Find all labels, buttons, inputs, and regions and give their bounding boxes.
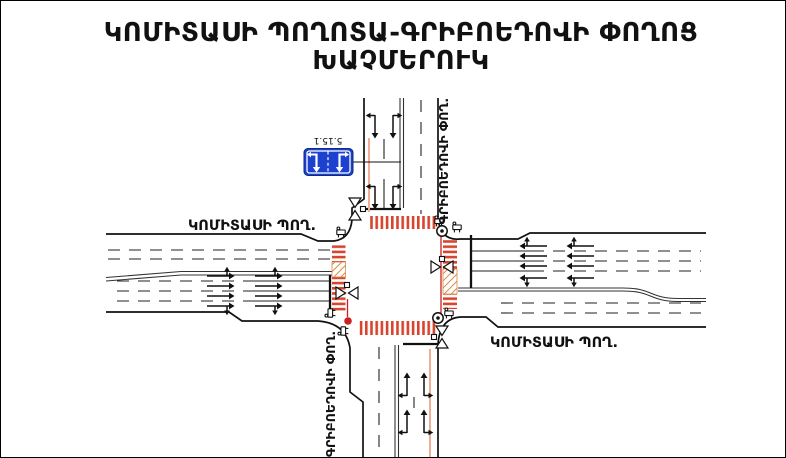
intersection-diagram: 5.15.1 ԿՈՄԻՏԱՍԻ ՊՈՂ. ԿՈՄԻՏԱՍԻ ՊՈՂ. ԳՐԻԲՈ… — [1, 1, 786, 458]
intersection-scheme-image: 5.15.1 ԿՈՄԻՏԱՍԻ ՊՈՂ. ԿՈՄԻՏԱՍԻ ՊՈՂ. ԳՐԻԲՈ… — [0, 0, 786, 458]
pedestrian-signal-icon — [337, 227, 345, 237]
page-title: ԿՈՄԻՏԱՍԻ ՊՈՂՈՏԱ-ԳՐԻԲՈԵԴՈՎԻ ՓՈՂՈՑ ԽԱՉՄԵՐՈ… — [104, 18, 699, 76]
title-line-1: ԿՈՄԻՏԱՍԻ ՊՈՂՈՏԱ-ԳՐԻԲՈԵԴՈՎԻ ՓՈՂՈՑ — [104, 18, 699, 48]
crosswalk-west — [332, 244, 346, 311]
pedestrian-signal-icon — [445, 308, 453, 318]
street-label-komitas-west: ԿՈՄԻՏԱՍԻ ՊՈՂ. — [188, 218, 316, 234]
street-label-griboyedov-south: ԳՐԻԲՈԵԴՈՎԻ ՓՈՂ. — [323, 331, 338, 457]
pedestrian-signal-icon — [453, 222, 461, 232]
signal-pole-icon-ne — [437, 226, 447, 236]
crosswalk-east-island-hatch — [443, 269, 457, 294]
crosswalk-south — [359, 321, 436, 335]
street-label-komitas-east: ԿՈՄԻՏԱՍԻ ՊՈՂ. — [490, 335, 618, 351]
title-line-2: ԽԱՉՄԵՐՈՒԿ — [312, 46, 489, 76]
lane-direction-sign: 5.15.1 — [304, 135, 401, 176]
road-edges — [106, 98, 706, 458]
lane-markings — [106, 98, 706, 458]
sign-code-label: 5.15.1 — [314, 135, 343, 145]
crosswalk-north — [368, 216, 438, 229]
street-label-griboyedov-north: ԳՐԻԲՈԵԴՈՎԻ ՓՈՂ. — [436, 98, 451, 224]
pedestrian-signal-icon — [325, 309, 335, 317]
crosswalk-west-island-hatch — [332, 262, 346, 277]
signal-pole-icon-se — [433, 313, 443, 323]
signal-pole-dot-sw — [344, 317, 352, 325]
